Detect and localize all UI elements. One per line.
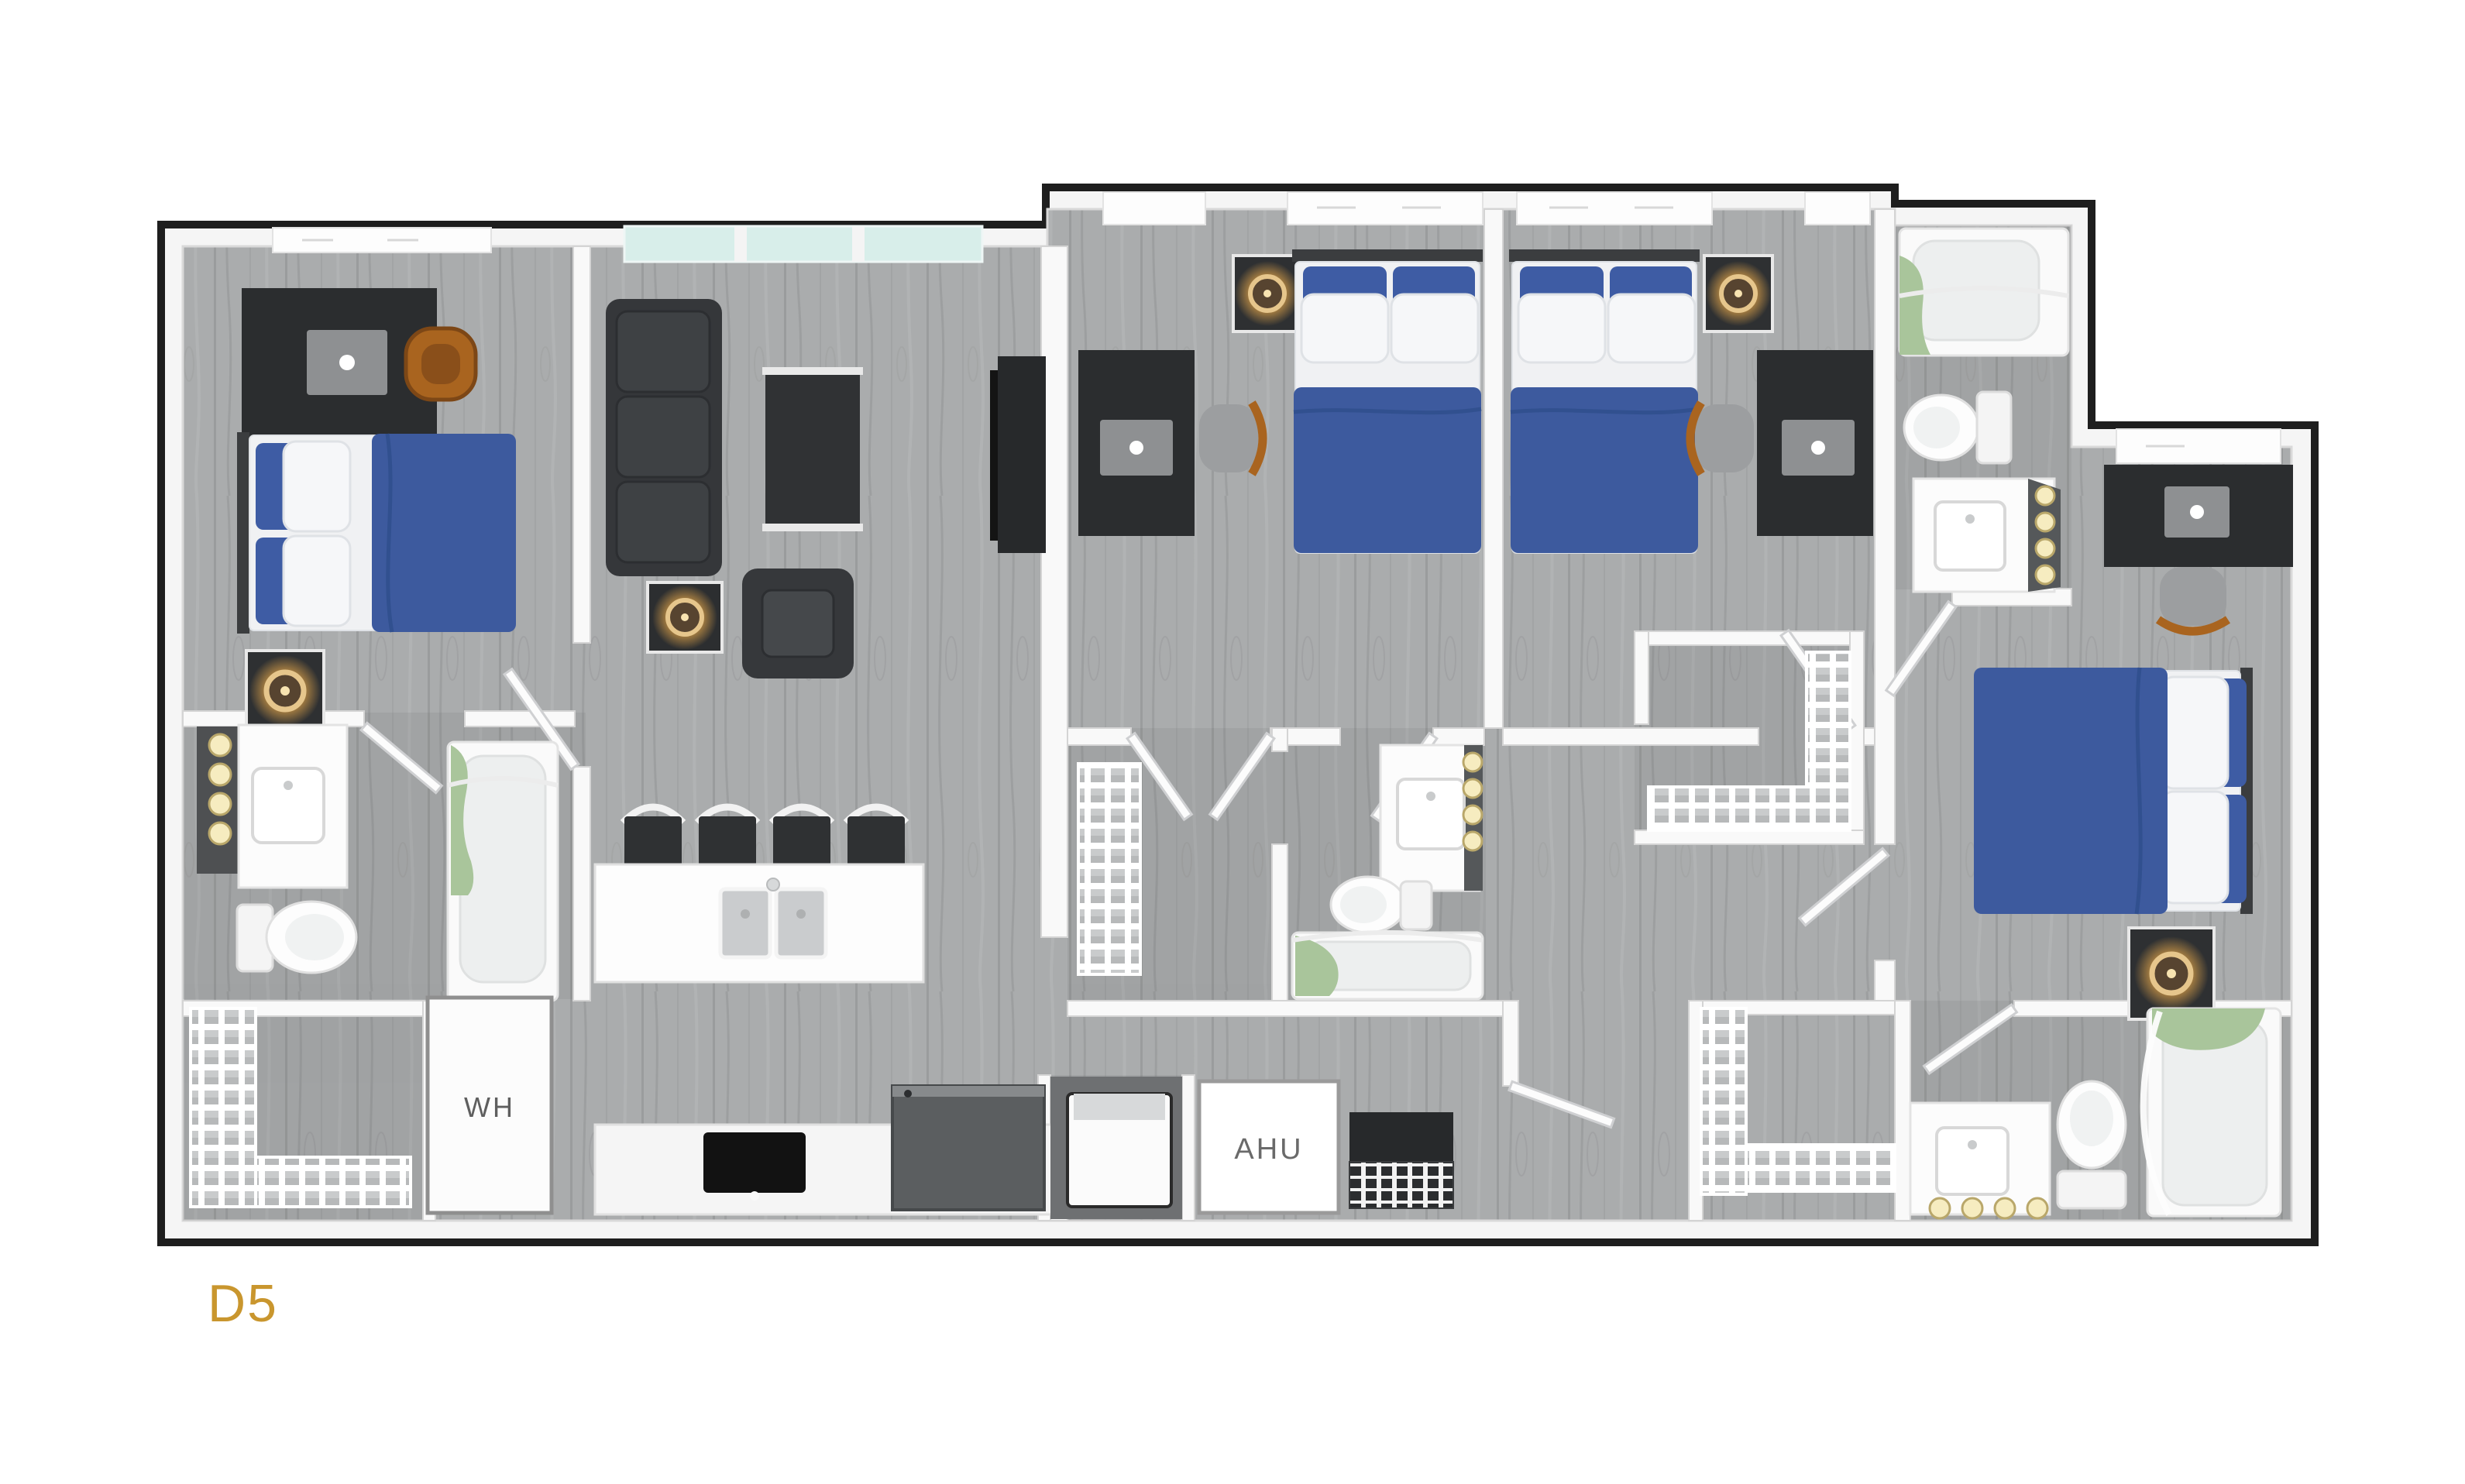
bathtub: [1899, 228, 2068, 356]
bathtub: [2144, 1008, 2281, 1216]
air-handler-label: AHU: [1234, 1133, 1303, 1166]
living-room-window: [624, 226, 982, 262]
sink-basin: [720, 889, 770, 957]
tv-console: [990, 356, 1046, 553]
bedroom1-window: [273, 228, 491, 252]
desk: [1078, 350, 1195, 536]
sink-basin: [776, 889, 826, 957]
armchair: [742, 569, 854, 678]
floorplan-page: WH: [0, 0, 2465, 1484]
toilet: [237, 902, 356, 973]
shower-tile-bed2-closet: [1078, 764, 1140, 974]
toilet: [1331, 877, 1432, 933]
duvet: [372, 434, 516, 632]
unit-label: D5: [208, 1274, 278, 1333]
desk-chair: [1690, 403, 1754, 474]
pillow-white: [2161, 792, 2228, 903]
nightstand: [246, 651, 324, 731]
desk-chair: [2158, 567, 2228, 631]
bed: [237, 432, 516, 634]
vanity: [1910, 1103, 2050, 1214]
refrigerator: [892, 1086, 1044, 1210]
water-heater-label: WH: [464, 1091, 515, 1123]
pillow-white: [284, 536, 350, 626]
side-table: [648, 582, 722, 652]
cooktop: [703, 1132, 806, 1193]
pillow-white: [1391, 294, 1478, 362]
shower-tile-mid-bottom: [1648, 787, 1850, 830]
washer: [1067, 1094, 1171, 1207]
kitchen-island: [595, 864, 923, 982]
coffee-table: [762, 367, 863, 531]
toilet: [1904, 392, 2011, 463]
pillow-white: [1608, 294, 1695, 362]
bed: [1509, 249, 1700, 553]
sink: [1937, 1128, 2008, 1194]
nightstand: [1704, 256, 1772, 331]
bedroom2-windows: [1103, 192, 1483, 225]
floorplan-rendering: WH: [0, 0, 2465, 1484]
pillow-white: [284, 441, 350, 531]
bedroom4-window: [2116, 429, 2281, 463]
vanity: [239, 725, 347, 888]
shower-tile-left-closet: [191, 1008, 256, 1207]
nightstand: [2129, 928, 2214, 1019]
desk-chair: [1199, 403, 1263, 474]
sink: [1935, 502, 2005, 570]
tv-screen: [990, 370, 998, 541]
desk: [1757, 350, 1873, 536]
pillow-white: [2161, 677, 2228, 788]
bathtub: [448, 742, 558, 1001]
sink: [253, 768, 324, 843]
pillow-white: [1518, 294, 1605, 362]
pillow-white: [1301, 294, 1388, 362]
desk: [2104, 465, 2293, 567]
desk-chair: [406, 328, 476, 400]
vent-cabinet: [1349, 1112, 1453, 1208]
shower-tile-br-closet: [1701, 1008, 1746, 1194]
bathtub: [1292, 933, 1483, 999]
bed: [1292, 249, 1483, 553]
nightstand: [1233, 256, 1301, 331]
bedroom3-windows: [1517, 192, 1870, 225]
shower-tile-left-closet-bottom: [256, 1157, 411, 1207]
sofa: [606, 299, 722, 576]
shower-tile-br-bottom: [1746, 1145, 1895, 1191]
faucet: [767, 878, 779, 891]
bed: [1974, 668, 2253, 914]
toilet: [2058, 1081, 2126, 1208]
water-heater-closet: WH: [428, 998, 552, 1213]
air-handler-closet: AHU: [1199, 1081, 1339, 1213]
sink: [1398, 779, 1464, 849]
